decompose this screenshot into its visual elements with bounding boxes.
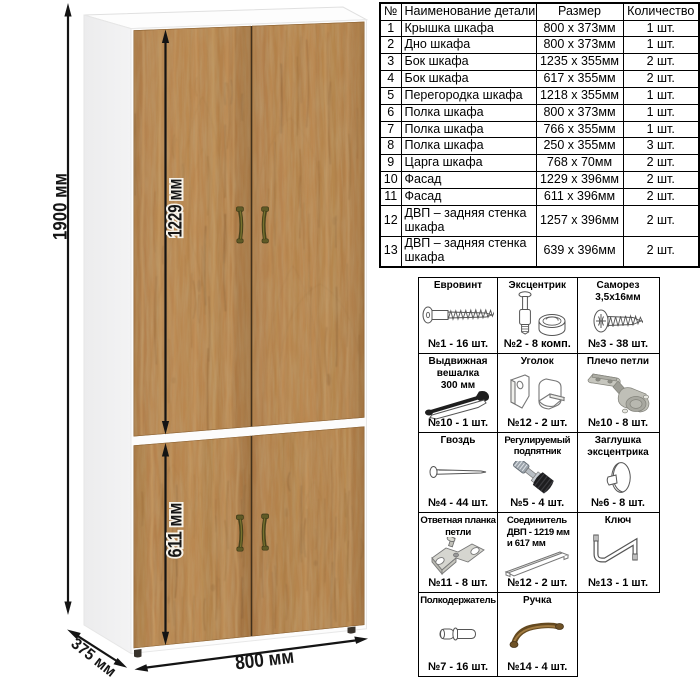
svg-text:800 мм: 800 мм xyxy=(234,646,295,675)
svg-text:1229 мм: 1229 мм xyxy=(166,179,187,238)
svg-text:1900 мм: 1900 мм xyxy=(50,173,72,240)
svg-text:611 мм: 611 мм xyxy=(166,503,187,558)
